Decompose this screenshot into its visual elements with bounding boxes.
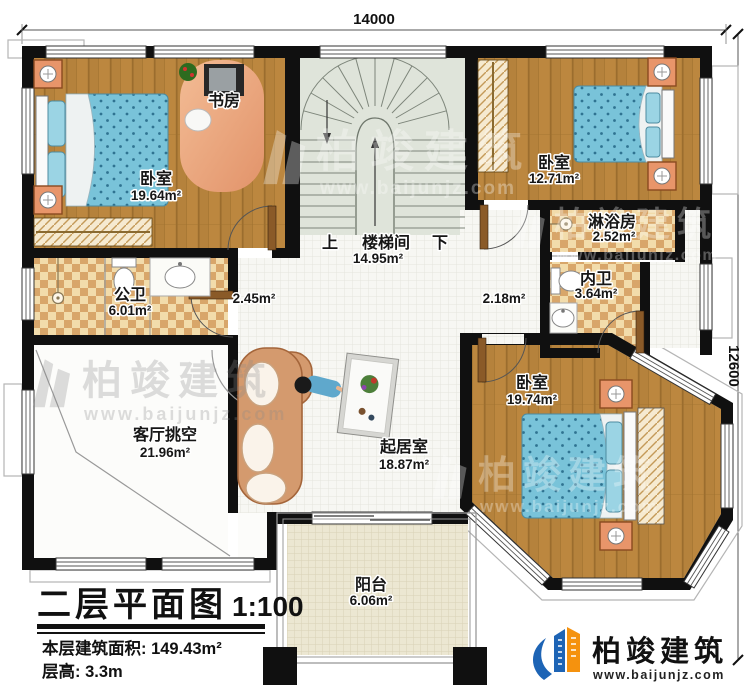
window xyxy=(721,424,733,508)
window xyxy=(320,46,446,58)
dimension-width-label: 14000 xyxy=(353,11,395,28)
room-label-bedroom-tr: 卧室 xyxy=(538,153,570,172)
window xyxy=(56,558,146,570)
desk-chair xyxy=(185,109,211,131)
window xyxy=(546,46,664,58)
floor-area-line: 本层建筑面积: 149.43m² xyxy=(42,638,222,658)
stair-down-label: 下 xyxy=(432,235,448,252)
balcony-post xyxy=(453,647,487,685)
bed-sheet-fold xyxy=(66,94,95,206)
nightstand xyxy=(648,162,676,190)
plan-scale: 1:100 xyxy=(232,591,304,622)
person-head xyxy=(295,377,312,394)
bedroom-br-door-threshold xyxy=(482,334,524,344)
svg-text:19.64m²: 19.64m² xyxy=(131,188,182,203)
balcony-post xyxy=(263,647,297,685)
window xyxy=(162,558,254,570)
stair-up-label: 上 xyxy=(322,234,338,252)
room-label-public-bath: 公卫 xyxy=(114,286,146,304)
floorplan-drawing: 14000 12600 xyxy=(0,0,750,696)
void-floor-extension xyxy=(238,513,267,558)
svg-text:柏竣建筑: 柏竣建筑 xyxy=(316,127,532,176)
dimension-height-label: 12600 xyxy=(725,345,742,387)
hall-left-area: 2.45m² xyxy=(233,291,276,306)
floorplan-page: 14000 12600 xyxy=(0,0,750,696)
bed-headboard xyxy=(662,90,674,158)
svg-text:柏竣建筑: 柏竣建筑 xyxy=(82,359,274,403)
svg-text:19.74m²: 19.74m² xyxy=(507,392,558,407)
window xyxy=(700,264,712,330)
hall-right-area: 2.18m² xyxy=(483,291,526,306)
room-label-living-void: 客厅挑空 xyxy=(133,425,197,444)
coffee-table xyxy=(337,353,398,439)
window xyxy=(700,78,712,184)
nightstand xyxy=(600,522,632,550)
terrace-floor-b xyxy=(650,262,700,348)
plan-title: 二层平面图 xyxy=(37,586,227,624)
pillow xyxy=(646,93,660,123)
svg-text:6.06m²: 6.06m² xyxy=(350,593,393,608)
svg-text:21.96m²: 21.96m² xyxy=(140,445,191,460)
plant xyxy=(179,63,197,81)
nightstand xyxy=(600,380,632,408)
svg-text:2.52m²: 2.52m² xyxy=(593,229,636,244)
svg-text:14.95m²: 14.95m² xyxy=(353,251,404,266)
toilet-tank xyxy=(112,258,136,267)
window xyxy=(22,390,34,474)
balcony-sliding-door xyxy=(312,512,432,524)
svg-text:www.baijunjz.com: www.baijunjz.com xyxy=(555,247,718,264)
company-website: www.baijunjz.com xyxy=(592,668,725,682)
window xyxy=(22,88,34,174)
svg-text:18.87m²: 18.87m² xyxy=(379,457,430,472)
pillow xyxy=(48,101,65,146)
svg-text:www.baijunjz.com: www.baijunjz.com xyxy=(479,497,659,516)
window xyxy=(22,268,34,320)
nightstand xyxy=(34,60,62,88)
window xyxy=(562,578,642,590)
svg-text:6.01m²: 6.01m² xyxy=(109,303,152,318)
window xyxy=(46,46,146,58)
room-label-balcony: 阳台 xyxy=(355,575,387,594)
window xyxy=(154,46,254,58)
svg-text:柏竣建筑: 柏竣建筑 xyxy=(478,455,658,497)
hall-right-floor xyxy=(460,210,540,345)
room-label-family-room: 起居室 xyxy=(379,437,428,456)
floor-height-line: 层高: 3.3m xyxy=(42,661,123,681)
svg-text:www.baijunjz.com: www.baijunjz.com xyxy=(83,404,287,424)
svg-text:12.71m²: 12.71m² xyxy=(529,171,580,186)
room-label-bedroom-tl: 卧室 xyxy=(140,169,172,188)
sink xyxy=(165,266,195,288)
room-label-study: 书房 xyxy=(208,91,240,110)
nightstand xyxy=(34,186,62,214)
company-name: 柏竣建筑 xyxy=(592,634,728,668)
nightstand xyxy=(648,58,676,86)
svg-text:3.64m²: 3.64m² xyxy=(575,286,618,301)
svg-text:www.baijunjz.com: www.baijunjz.com xyxy=(319,178,516,199)
pillow xyxy=(646,127,660,157)
room-label-stairwell: 楼梯间 xyxy=(362,233,410,252)
room-label-bedroom-br: 卧室 xyxy=(516,373,548,392)
